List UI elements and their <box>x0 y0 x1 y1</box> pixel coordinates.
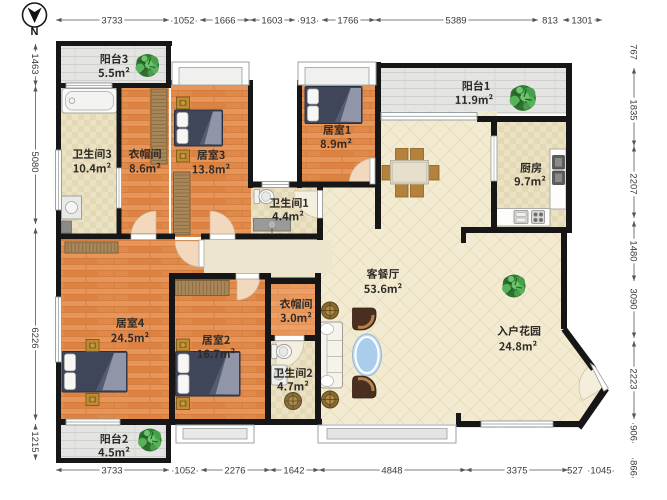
svg-text:767: 767 <box>628 44 639 60</box>
svg-text:2223: 2223 <box>628 368 639 389</box>
svg-text:2207: 2207 <box>628 173 639 194</box>
svg-text:N: N <box>31 26 39 38</box>
svg-text:5389: 5389 <box>445 15 466 26</box>
svg-text:1835: 1835 <box>628 99 639 120</box>
svg-text:527: 527 <box>567 465 583 476</box>
svg-text:3733: 3733 <box>101 15 122 26</box>
svg-text:·906·: ·906· <box>628 422 639 444</box>
svg-text:3733: 3733 <box>101 465 122 476</box>
svg-text:1766: 1766 <box>337 15 358 26</box>
svg-text:1666: 1666 <box>214 15 235 26</box>
svg-text:·913·: ·913· <box>297 15 319 26</box>
svg-text:813: 813 <box>542 15 558 26</box>
svg-text:1480: 1480 <box>628 240 639 261</box>
svg-text:1301: 1301 <box>571 15 592 26</box>
svg-text:1463: 1463 <box>29 53 40 74</box>
svg-text:3375: 3375 <box>506 465 527 476</box>
svg-text:3090: 3090 <box>628 288 639 309</box>
svg-text:·866·: ·866· <box>628 457 639 479</box>
svg-text:1215: 1215 <box>29 431 40 452</box>
svg-text:4848: 4848 <box>381 465 402 476</box>
svg-text:1603: 1603 <box>261 15 282 26</box>
svg-text:·1052·: ·1052· <box>170 15 197 26</box>
svg-text:1642: 1642 <box>283 465 304 476</box>
svg-text:6226: 6226 <box>29 327 40 348</box>
svg-text:·1045·: ·1045· <box>587 465 614 476</box>
svg-text:·1052·: ·1052· <box>171 465 198 476</box>
svg-text:2276: 2276 <box>224 465 245 476</box>
svg-text:5080: 5080 <box>29 151 40 172</box>
